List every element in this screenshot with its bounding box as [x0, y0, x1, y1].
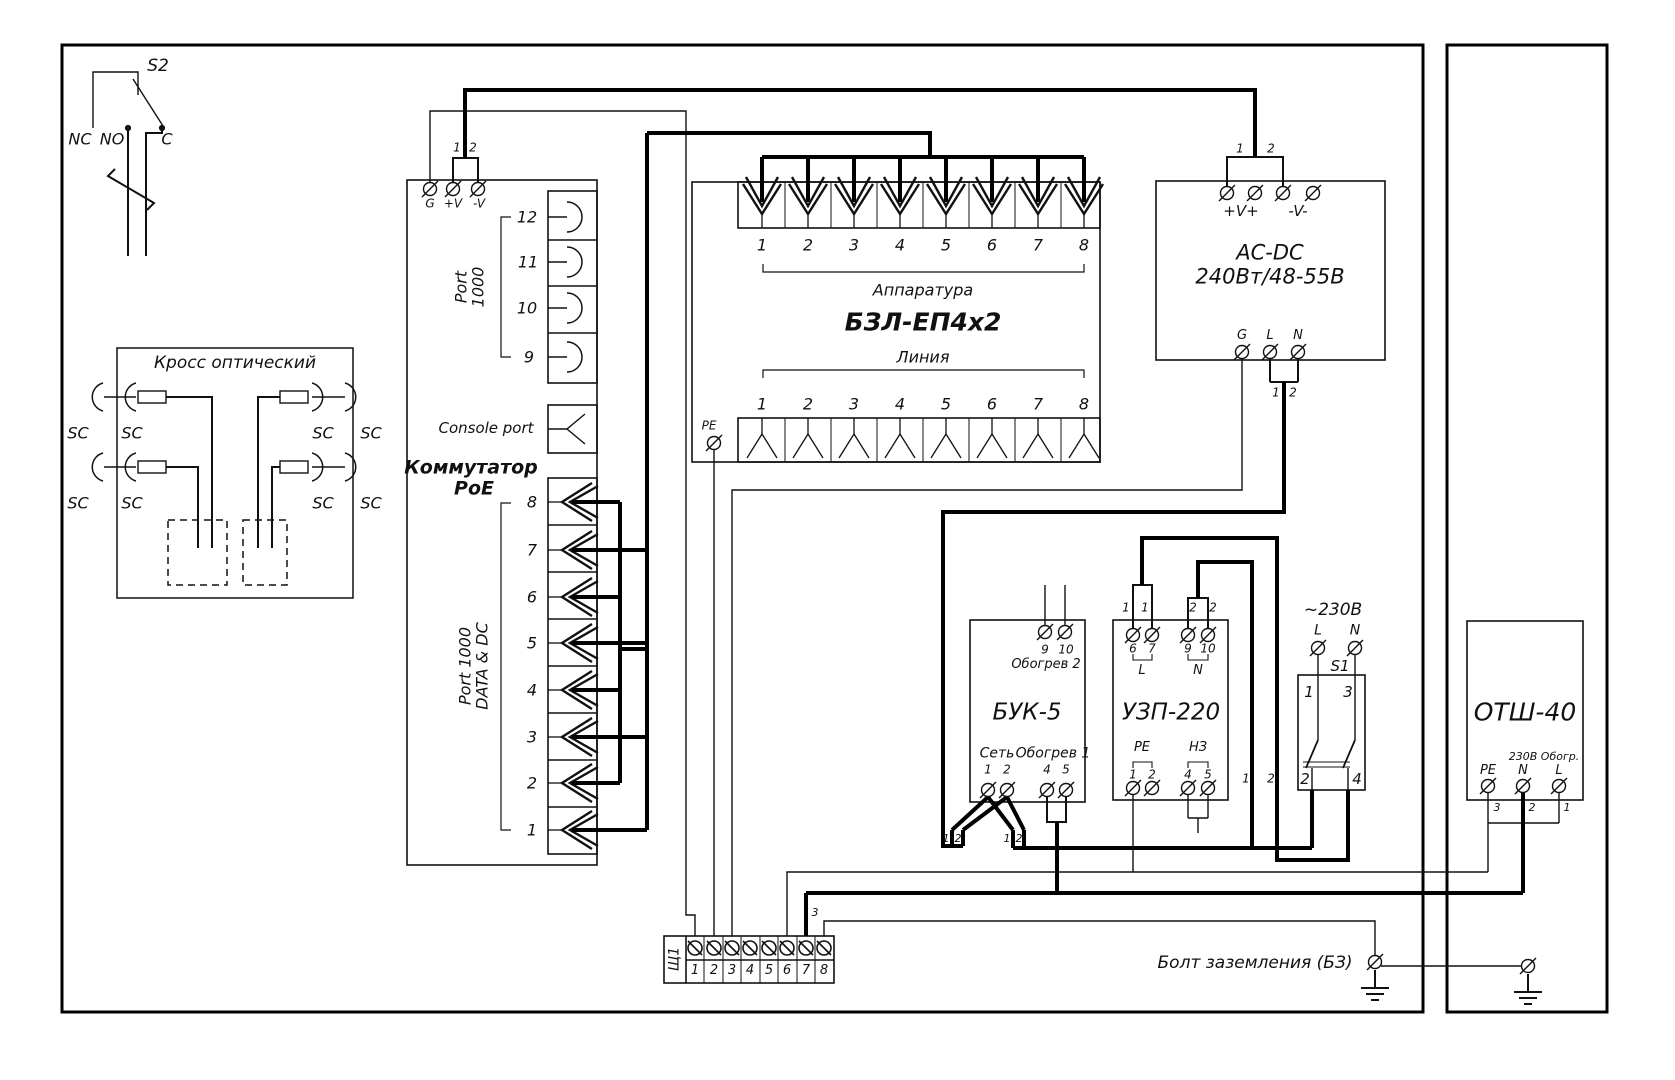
s1-c3-label: 3: [1343, 684, 1353, 700]
wire-number: 3: [812, 907, 819, 919]
main-cabinet-outline: [62, 45, 1607, 1012]
terminal-number: 5: [765, 964, 773, 978]
apparatus-number: 8: [1079, 236, 1089, 253]
sc-label: SC: [121, 424, 142, 441]
sc-label: SC: [67, 424, 88, 441]
apparatus-number: 4: [895, 236, 905, 253]
sc-label: SC: [360, 494, 381, 511]
uzp-t7-label: 7: [1148, 643, 1156, 656]
uzp-n-label: N: [1193, 664, 1203, 678]
buk-t1-label: 1: [984, 764, 992, 777]
uzp-t9-label: 9: [1184, 643, 1192, 656]
sc-label: SC: [121, 494, 142, 511]
buk-t10-label: 10: [1058, 644, 1073, 657]
buk-title: БУК-5: [992, 701, 1061, 726]
console-port-icon: [548, 414, 585, 444]
s1-c1-label: 1: [1304, 684, 1314, 700]
otsh-title: ОТШ-40: [1474, 699, 1577, 726]
port1000-line2: 1000: [470, 267, 487, 308]
uzp-nz-label: НЗ: [1189, 741, 1207, 755]
screw-terminal-icon: [707, 941, 721, 955]
s2-label: S2: [147, 57, 169, 75]
port-number: 1: [527, 821, 537, 838]
wire-number: 2: [1529, 802, 1536, 814]
cable-wire-number: 2: [1016, 833, 1023, 845]
terminal-number: 2: [710, 964, 718, 978]
terminal-number: 8: [820, 964, 828, 978]
sc-label: SC: [67, 494, 88, 511]
uzp-pe-label: PE: [1134, 741, 1150, 755]
port-number: 8: [527, 493, 537, 510]
screw-terminal-icon: [725, 941, 739, 955]
s2-nc-label: NC: [68, 130, 91, 147]
screw-terminal-icon: [817, 941, 831, 955]
port-number: 4: [527, 681, 537, 698]
buk-heat2-label: Обогрев 2: [1011, 658, 1080, 672]
line-number: 4: [895, 395, 905, 412]
line-number: 1: [757, 395, 767, 412]
uzp-b1-label: 1: [1129, 769, 1137, 782]
screw-terminal-icon: [688, 941, 702, 955]
datadc-line2: DATA & DC: [474, 622, 491, 710]
bzl-pe-label: PE: [702, 420, 717, 433]
port-number: 5: [527, 634, 537, 651]
uzp-l-label: L: [1138, 664, 1145, 678]
poe-switch-box: [407, 180, 597, 865]
terminal-number: 7: [802, 964, 810, 978]
wire-number: 1: [1141, 602, 1149, 615]
wire-number: 1: [453, 142, 461, 155]
terminal-number: 6: [783, 964, 791, 978]
wire-number: 2: [1189, 602, 1197, 615]
acdc-title-line1: AC-DC: [1236, 242, 1303, 265]
s1-n-label: N: [1350, 623, 1360, 638]
screw-terminal-icon: [799, 941, 813, 955]
buk-t2-label: 2: [1003, 764, 1011, 777]
wire-number: 3: [1494, 802, 1501, 814]
terminal-number: 3: [728, 964, 736, 978]
optical-port-icons: [548, 202, 582, 372]
line-number: 7: [1033, 395, 1043, 412]
wiring-diagram: S2 NC NO C Кросс оптический SC SC SC SC …: [0, 0, 1675, 1080]
terminal-number: 4: [746, 964, 754, 978]
ground-bolt-label: Болт заземления (БЗ): [1158, 954, 1353, 972]
console-port-label: Console port: [438, 420, 533, 436]
wire-number: 2: [1267, 773, 1275, 786]
otsh-230v-label: 230В: [1509, 751, 1538, 763]
otsh-n-label: N: [1518, 764, 1528, 778]
uzp-title: УЗП-220: [1122, 701, 1220, 726]
apparatus-number: 3: [849, 236, 859, 253]
wire-number: 1: [1564, 802, 1571, 814]
line-label: Линия: [897, 348, 950, 365]
datadc-label: Port 1000 DATA & DC: [457, 622, 492, 710]
otsh-heat-label: Обогр.: [1541, 751, 1579, 763]
wire-number: 1: [1122, 602, 1130, 615]
wire-number: 2: [1289, 387, 1297, 400]
acdc-title-line2: 240Вт/48-55В: [1195, 266, 1344, 289]
s1-c2-label: 2: [1300, 771, 1310, 787]
apparatus-number: 6: [987, 236, 997, 253]
switch-title-line1: Коммутатор: [404, 458, 538, 479]
s1-voltage-label: ~230В: [1304, 601, 1362, 619]
port-group-brackets: [501, 217, 511, 830]
apparatus-number: 5: [941, 236, 951, 253]
apparatus-number: 2: [803, 236, 813, 253]
s2-switch-symbol: [93, 72, 164, 256]
line-number: 6: [987, 395, 997, 412]
switch-g-label: G: [425, 198, 434, 211]
switch-vminus-label: -V: [473, 198, 485, 211]
uzp-t6-label: 6: [1129, 643, 1137, 656]
wire-number: 2: [1209, 602, 1217, 615]
otsh-l-label: L: [1555, 764, 1562, 778]
bzl-title: БЗЛ-ЕП4х2: [845, 309, 1002, 336]
optical-cross-title: Кросс оптический: [154, 354, 316, 372]
line-number: 8: [1079, 395, 1089, 412]
sc-label: SC: [360, 424, 381, 441]
wire-number: 1: [1236, 143, 1244, 156]
cable-wire-number: 2: [955, 833, 962, 845]
s1-c4-label: 4: [1352, 771, 1362, 787]
port-number: 2: [527, 774, 537, 791]
wire-number: 1: [1242, 773, 1250, 786]
port1000-label: Port 1000: [453, 267, 488, 308]
optical-cross-fibers: [166, 397, 280, 548]
wire-number: 1: [1272, 387, 1280, 400]
switch-title-line2: РоЕ: [454, 479, 494, 500]
line-number: 2: [803, 395, 813, 412]
port-number: 10: [517, 299, 537, 316]
port-number: 9: [524, 348, 534, 365]
terminal-icons: [422, 181, 1567, 974]
sc-label: SC: [312, 494, 333, 511]
acdc-vminus-label: -V-: [1288, 203, 1307, 219]
s2-c-label: C: [161, 130, 172, 147]
cable-wire-number: 1: [1004, 833, 1011, 845]
uzp-t10-label: 10: [1200, 643, 1215, 656]
screw-terminal-icon: [762, 941, 776, 955]
otsh-pe-label: PE: [1480, 764, 1496, 778]
buk-t5-label: 5: [1062, 764, 1070, 777]
buk-heat1-label: Обогрев 1: [1016, 746, 1091, 761]
wire-number: 2: [469, 142, 477, 155]
port1000-line1: Port: [453, 267, 470, 308]
screw-terminal-icon: [743, 941, 757, 955]
apparatus-number: 7: [1033, 236, 1043, 253]
buk-net-label: Сеть: [980, 746, 1015, 761]
port-number: 6: [527, 588, 537, 605]
uzp-b4-label: 4: [1184, 769, 1192, 782]
apparatus-number: 1: [757, 236, 767, 253]
acdc-vplus-label: +V+: [1223, 203, 1258, 219]
datadc-line1: Port 1000: [457, 622, 474, 710]
line-number: 3: [849, 395, 859, 412]
line-number: 5: [941, 395, 951, 412]
s1-title: S1: [1330, 658, 1349, 674]
diagram-lines: [0, 0, 1675, 1080]
uzp-b5-label: 5: [1204, 769, 1212, 782]
sc-label: SC: [312, 424, 333, 441]
power-cables: [465, 90, 1523, 936]
terminal-block-label: Щ1: [667, 947, 682, 971]
acdc-n-label: N: [1293, 329, 1303, 343]
buk-t9-label: 9: [1041, 644, 1049, 657]
port-number: 7: [527, 541, 537, 558]
s2-no-label: NO: [100, 130, 125, 147]
buk-t4-label: 4: [1043, 764, 1051, 777]
cable-wire-number: 1: [943, 833, 950, 845]
screw-terminal-icon: [780, 941, 794, 955]
uzp-b2-label: 2: [1148, 769, 1156, 782]
apparatus-label: Аппаратура: [873, 281, 973, 298]
switch-vplus-label: +V: [444, 198, 462, 211]
port-number: 11: [518, 253, 538, 270]
acdc-g-label: G: [1237, 329, 1247, 343]
port-number: 12: [517, 208, 537, 225]
ground-icons: [1361, 970, 1542, 1004]
acdc-l-label: L: [1266, 329, 1273, 343]
s1-l-label: L: [1314, 623, 1322, 638]
ground-bolt-icon: [1367, 954, 1383, 970]
wire-number: 2: [1267, 143, 1275, 156]
ground-bolt-icon: [1520, 958, 1536, 974]
port-number: 3: [527, 728, 537, 745]
terminal-number: 1: [691, 964, 699, 978]
